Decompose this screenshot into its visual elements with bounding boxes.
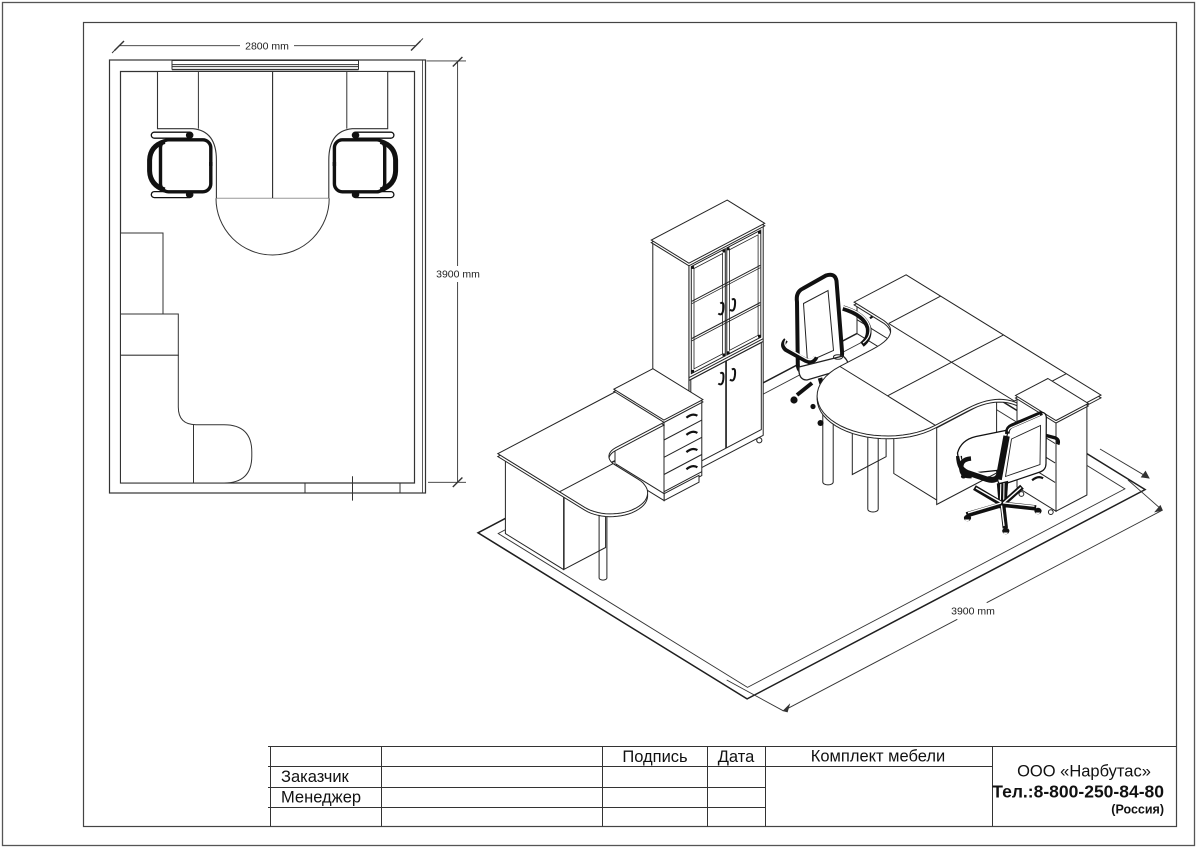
svg-text:Заказчик: Заказчик xyxy=(281,768,350,786)
svg-text:Подпись: Подпись xyxy=(622,748,687,766)
svg-text:Комплект мебели: Комплект мебели xyxy=(811,748,946,766)
svg-text:Менеджер: Менеджер xyxy=(281,789,361,807)
svg-text:Тел.:8-800-250-84-80: Тел.:8-800-250-84-80 xyxy=(992,782,1164,802)
svg-text:(Россия): (Россия) xyxy=(1111,803,1164,817)
svg-text:3900 mm: 3900 mm xyxy=(951,606,995,618)
svg-text:3900 mm: 3900 mm xyxy=(436,269,480,281)
svg-text:ООО «Нарбутас»: ООО «Нарбутас» xyxy=(1017,763,1151,781)
svg-text:2800 mm: 2800 mm xyxy=(245,41,289,53)
svg-text:Дата: Дата xyxy=(718,748,755,766)
